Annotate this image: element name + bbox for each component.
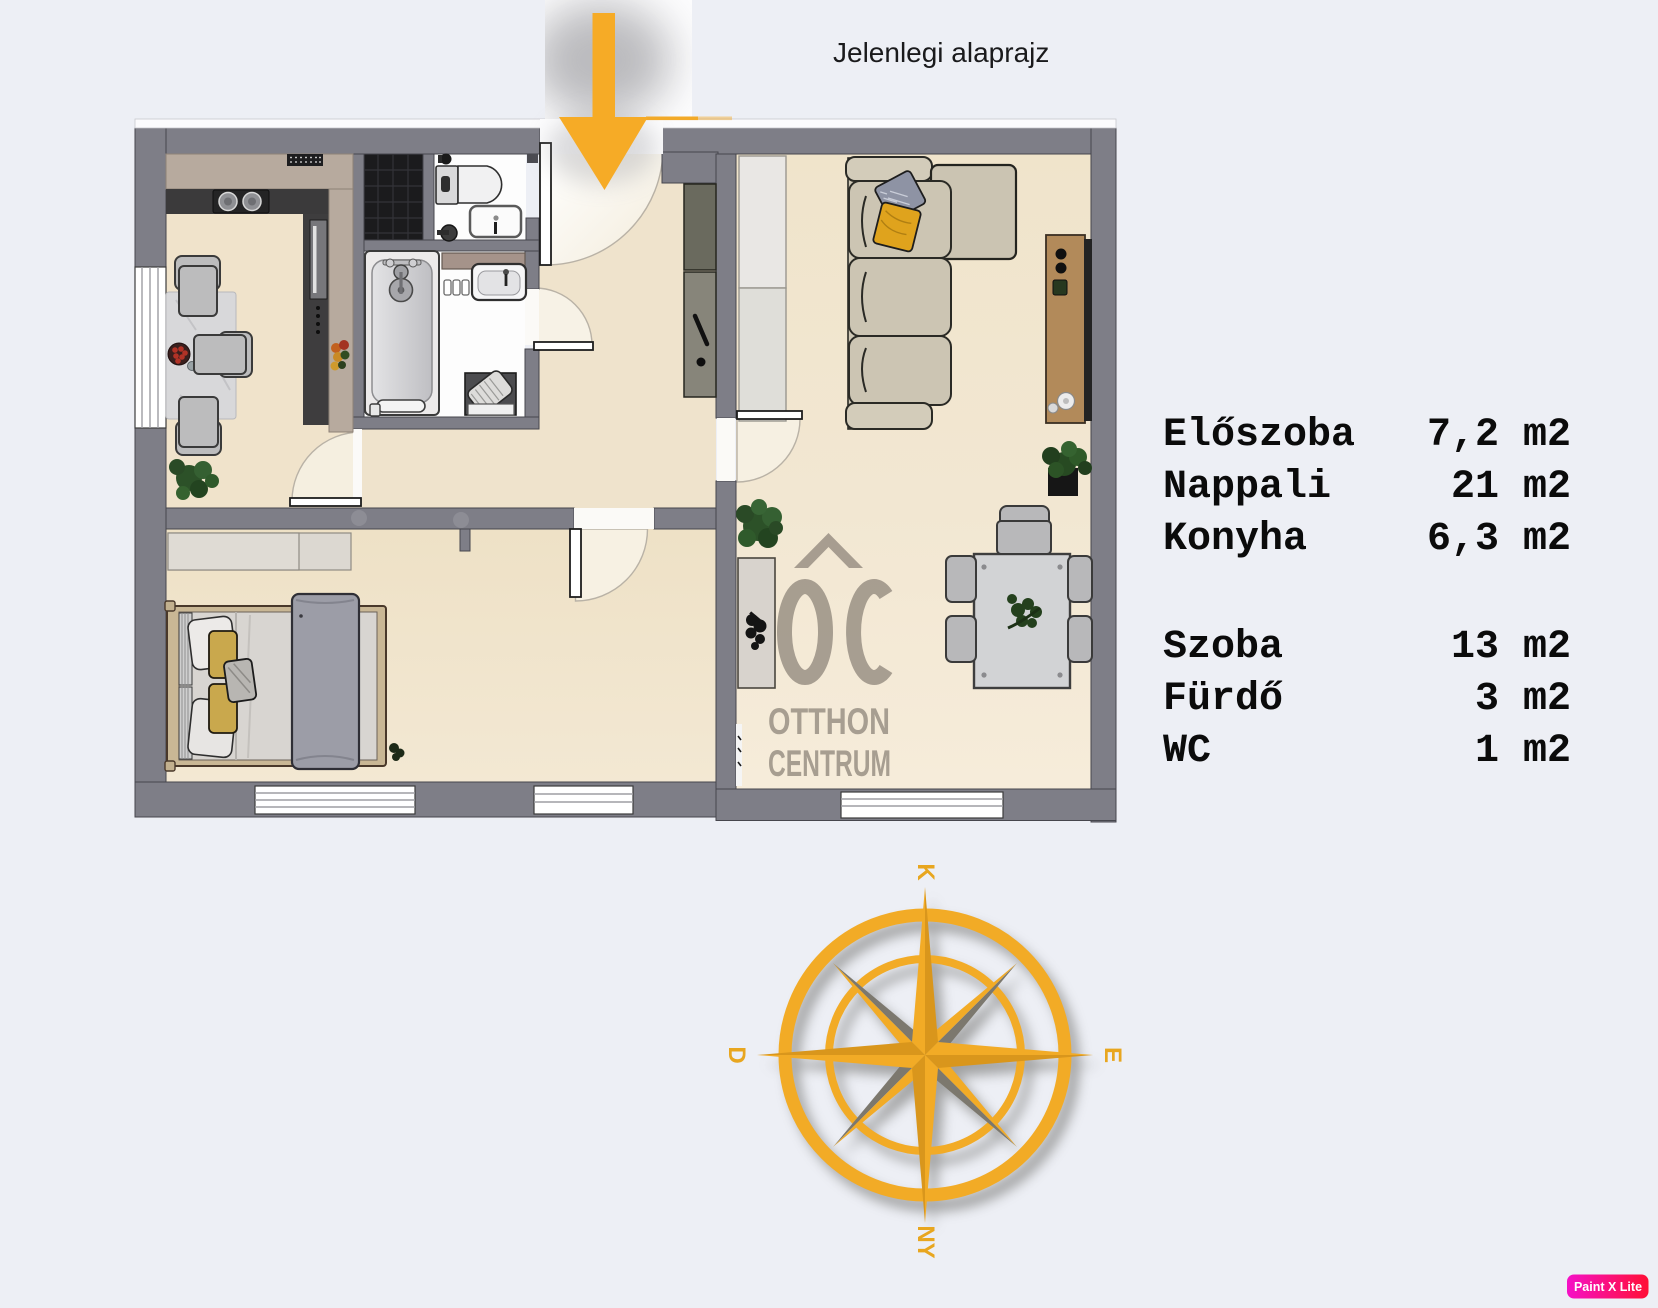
svg-text:Jelenlegi alaprajz: Jelenlegi alaprajz: [833, 37, 1049, 68]
svg-text:Paint X Lite: Paint X Lite: [1574, 1280, 1642, 1294]
svg-text:1 m2: 1 m2: [1475, 729, 1571, 774]
svg-text:CENTRUM: CENTRUM: [768, 743, 891, 784]
svg-text:Szoba: Szoba: [1163, 625, 1283, 670]
svg-text:3 m2: 3 m2: [1475, 677, 1571, 722]
svg-text:D: D: [723, 1046, 750, 1063]
svg-text:Nappali: Nappali: [1163, 465, 1331, 510]
svg-text:Előszoba: Előszoba: [1163, 413, 1355, 458]
svg-text:OTTHON: OTTHON: [768, 701, 890, 742]
svg-text:NY: NY: [912, 1225, 939, 1258]
svg-text:13 m2: 13 m2: [1451, 625, 1571, 670]
svg-text:6,3 m2: 6,3 m2: [1427, 517, 1571, 562]
svg-text:Konyha: Konyha: [1163, 517, 1307, 562]
svg-text:E: E: [1099, 1047, 1126, 1063]
svg-text:K: K: [912, 863, 939, 881]
svg-text:21 m2: 21 m2: [1451, 465, 1571, 510]
svg-text:7,2 m2: 7,2 m2: [1427, 413, 1571, 458]
svg-text:WC: WC: [1163, 729, 1211, 774]
svg-text:Fürdő: Fürdő: [1163, 677, 1283, 722]
